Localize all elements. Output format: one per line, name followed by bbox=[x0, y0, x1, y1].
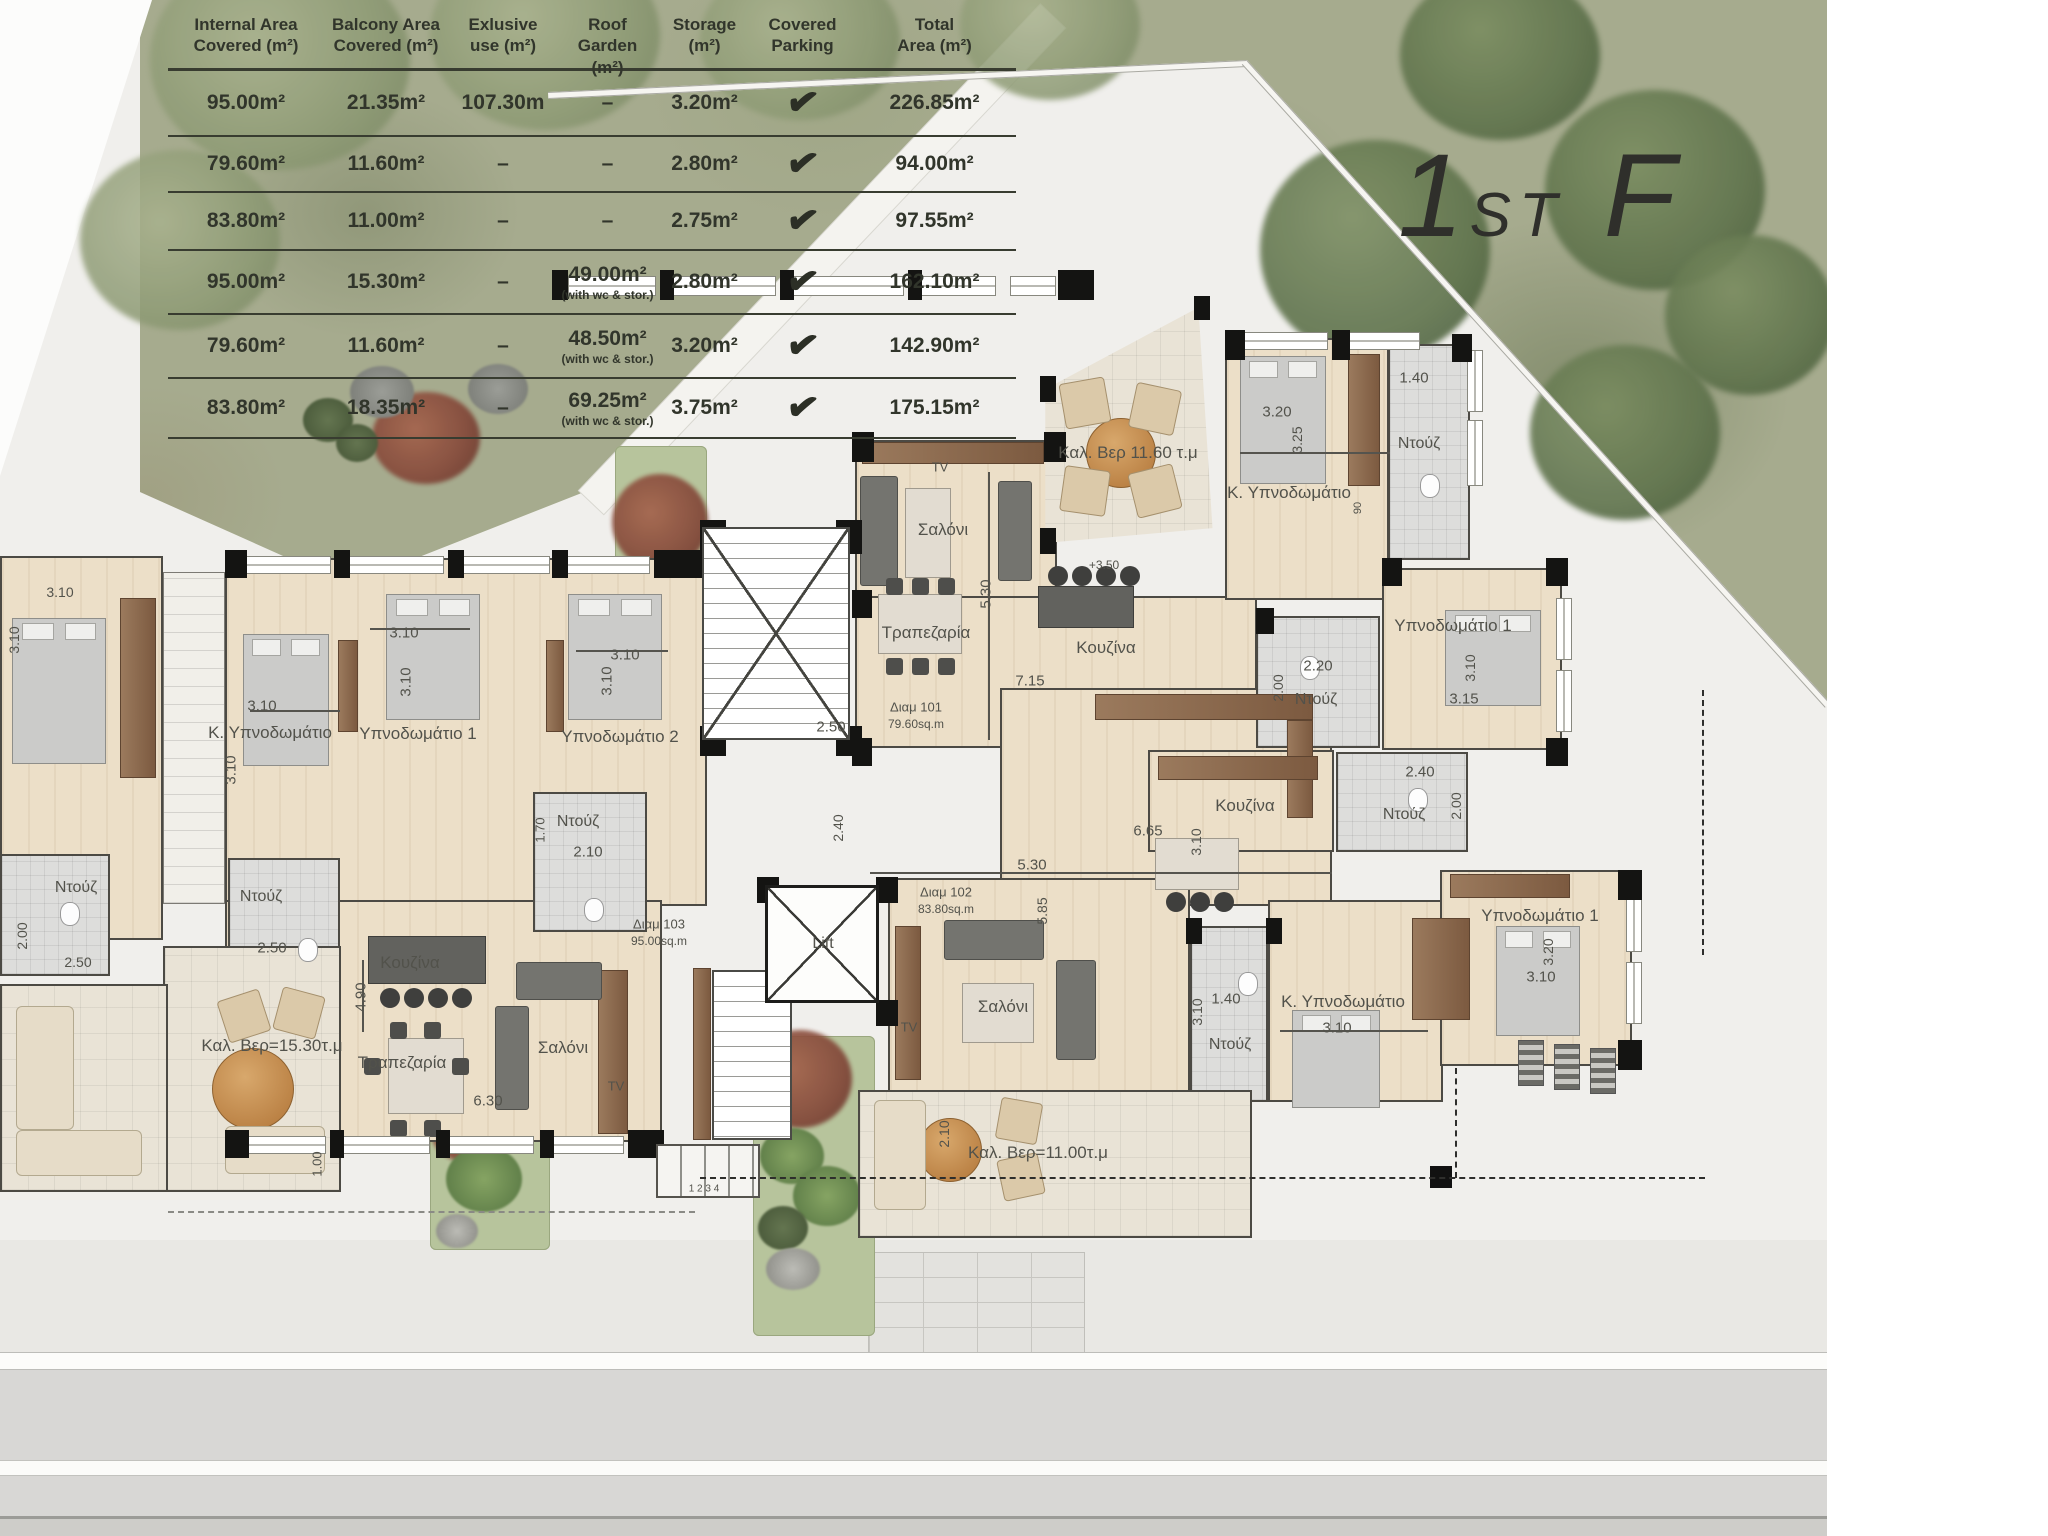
plan-label: TV bbox=[932, 460, 949, 475]
plan-label: 3.10 bbox=[1188, 828, 1204, 855]
plan-label: 1 2 3 4 bbox=[689, 1184, 720, 1195]
plan-label: Κουζίνα bbox=[380, 953, 439, 973]
plan-label: Υπνοδωμάτιο 1 bbox=[1481, 906, 1599, 926]
plan-label: 2.50 bbox=[816, 719, 845, 736]
plan-label: Ντούζ bbox=[1383, 806, 1425, 824]
plan-label: 3.20 bbox=[1540, 938, 1556, 965]
plan-label: Κ. Υπνοδωμάτιο bbox=[1227, 483, 1351, 503]
plan-label: TV bbox=[901, 1020, 918, 1035]
plan-label: Ντούζ bbox=[1398, 435, 1440, 453]
plan-label: 83.80sq.m bbox=[918, 902, 974, 916]
plan-label: TV bbox=[608, 1079, 625, 1094]
plan-label: Κουζίνα bbox=[1215, 796, 1274, 816]
plan-label: 6.65 bbox=[1133, 823, 1162, 840]
plan-label: 2.00 bbox=[1448, 792, 1464, 819]
plan-label: 2.50 bbox=[64, 954, 91, 970]
plan-label: 3.10 bbox=[1322, 1020, 1351, 1037]
plan-label: Ντούζ bbox=[557, 813, 599, 831]
plan-label: Ντούζ bbox=[55, 879, 97, 897]
plan-label: Υπνοδωμάτιο 1 bbox=[359, 724, 477, 744]
plan-label: Ντούζ bbox=[240, 888, 282, 906]
plan-label: 3.10 bbox=[1462, 654, 1478, 681]
plan-label: Διαμ 102 bbox=[920, 885, 972, 900]
plan-label: 5.85 bbox=[1034, 897, 1050, 924]
floor-title-number: 1 bbox=[1398, 130, 1470, 262]
plan-label: 79.60sq.m bbox=[888, 717, 944, 731]
plan-label: Σαλόνι bbox=[538, 1038, 588, 1058]
site-plan-canvas: Internal AreaCovered (m²)Balcony AreaCov… bbox=[0, 0, 2048, 1536]
plan-label: 3.10 bbox=[1526, 969, 1555, 986]
floor-title-ordinal: ST bbox=[1470, 181, 1565, 250]
plan-label: 3.10 bbox=[1189, 998, 1205, 1025]
image-margin bbox=[1827, 0, 2048, 1536]
plan-label: 3.25 bbox=[1289, 426, 1305, 453]
plan-label: 3.10 bbox=[6, 626, 22, 653]
plan-label: +3.50 bbox=[1089, 558, 1119, 572]
plan-label: Τραπεζαρία bbox=[882, 623, 971, 643]
plan-label: Κουζίνα bbox=[1076, 638, 1135, 658]
plan-label: 3.10 bbox=[46, 584, 73, 600]
plan-label: Διαμ 103 bbox=[633, 917, 685, 932]
plan-label: Ντούζ bbox=[1295, 691, 1337, 709]
plan-label: 2.40 bbox=[1405, 764, 1434, 781]
plan-label: Κ. Υπνοδωμάτιο bbox=[208, 723, 332, 743]
plan-label: 3.10 bbox=[247, 698, 276, 715]
plan-label: Υπνοδωμάτιο 1 bbox=[1394, 616, 1512, 636]
plan-label: 5.30 bbox=[978, 579, 995, 608]
plan-label: Lift bbox=[812, 935, 833, 953]
plan-label: 3.10 bbox=[223, 755, 240, 784]
plan-label: 5.30 bbox=[1017, 857, 1046, 874]
plan-label: Σαλόνι bbox=[978, 997, 1028, 1017]
plan-label: 3.15 bbox=[1449, 691, 1478, 708]
floor-title: 1ST F bbox=[1398, 128, 1682, 264]
plan-label: 2.20 bbox=[1303, 658, 1332, 675]
plan-label: 2.10 bbox=[573, 844, 602, 861]
plan-label: Τραπεζαρία bbox=[358, 1053, 447, 1073]
labels-layer: Κ. ΥπνοδωμάτιοΥπνοδωμάτιο 1Υπνοδωμάτιο 2… bbox=[0, 0, 2048, 1536]
plan-label: 2.00 bbox=[14, 922, 30, 949]
plan-label: 3.10 bbox=[610, 647, 639, 664]
plan-label: Καλ. Βερ=11.00τ.μ bbox=[968, 1143, 1108, 1163]
plan-label: 2.40 bbox=[830, 814, 846, 841]
plan-label: 4.90 bbox=[353, 982, 370, 1011]
plan-label: 6.30 bbox=[473, 1093, 502, 1110]
plan-label: Καλ. Βερ=15.30τ.μ bbox=[201, 1036, 342, 1056]
plan-label: 90 bbox=[1352, 502, 1364, 514]
plan-label: 1.40 bbox=[1399, 370, 1428, 387]
plan-label: 3.20 bbox=[1262, 404, 1291, 421]
plan-label: Καλ. Βερ 11.60 τ.μ bbox=[1058, 443, 1197, 463]
plan-label: Υπνοδωμάτιο 2 bbox=[561, 727, 679, 747]
plan-label: Κ. Υπνοδωμάτιο bbox=[1281, 992, 1405, 1012]
plan-label: 95.00sq.m bbox=[631, 934, 687, 948]
plan-label: 3.10 bbox=[398, 667, 415, 696]
plan-label: 1.40 bbox=[1211, 991, 1240, 1008]
plan-label: 2.50 bbox=[257, 940, 286, 957]
plan-label: 2.00 bbox=[1270, 674, 1286, 701]
plan-label: 7.15 bbox=[1015, 673, 1044, 690]
plan-label: 3.10 bbox=[389, 625, 418, 642]
plan-label: 1.70 bbox=[533, 817, 548, 842]
plan-label: Διαμ 101 bbox=[890, 700, 942, 715]
floor-title-rest: F bbox=[1565, 130, 1682, 262]
plan-label: 3.10 bbox=[599, 666, 616, 695]
plan-label: Ντούζ bbox=[1209, 1036, 1251, 1054]
plan-label: 2.10 bbox=[936, 1120, 952, 1147]
plan-label: Σαλόνι bbox=[918, 520, 968, 540]
plan-label: 1.00 bbox=[310, 1151, 325, 1176]
